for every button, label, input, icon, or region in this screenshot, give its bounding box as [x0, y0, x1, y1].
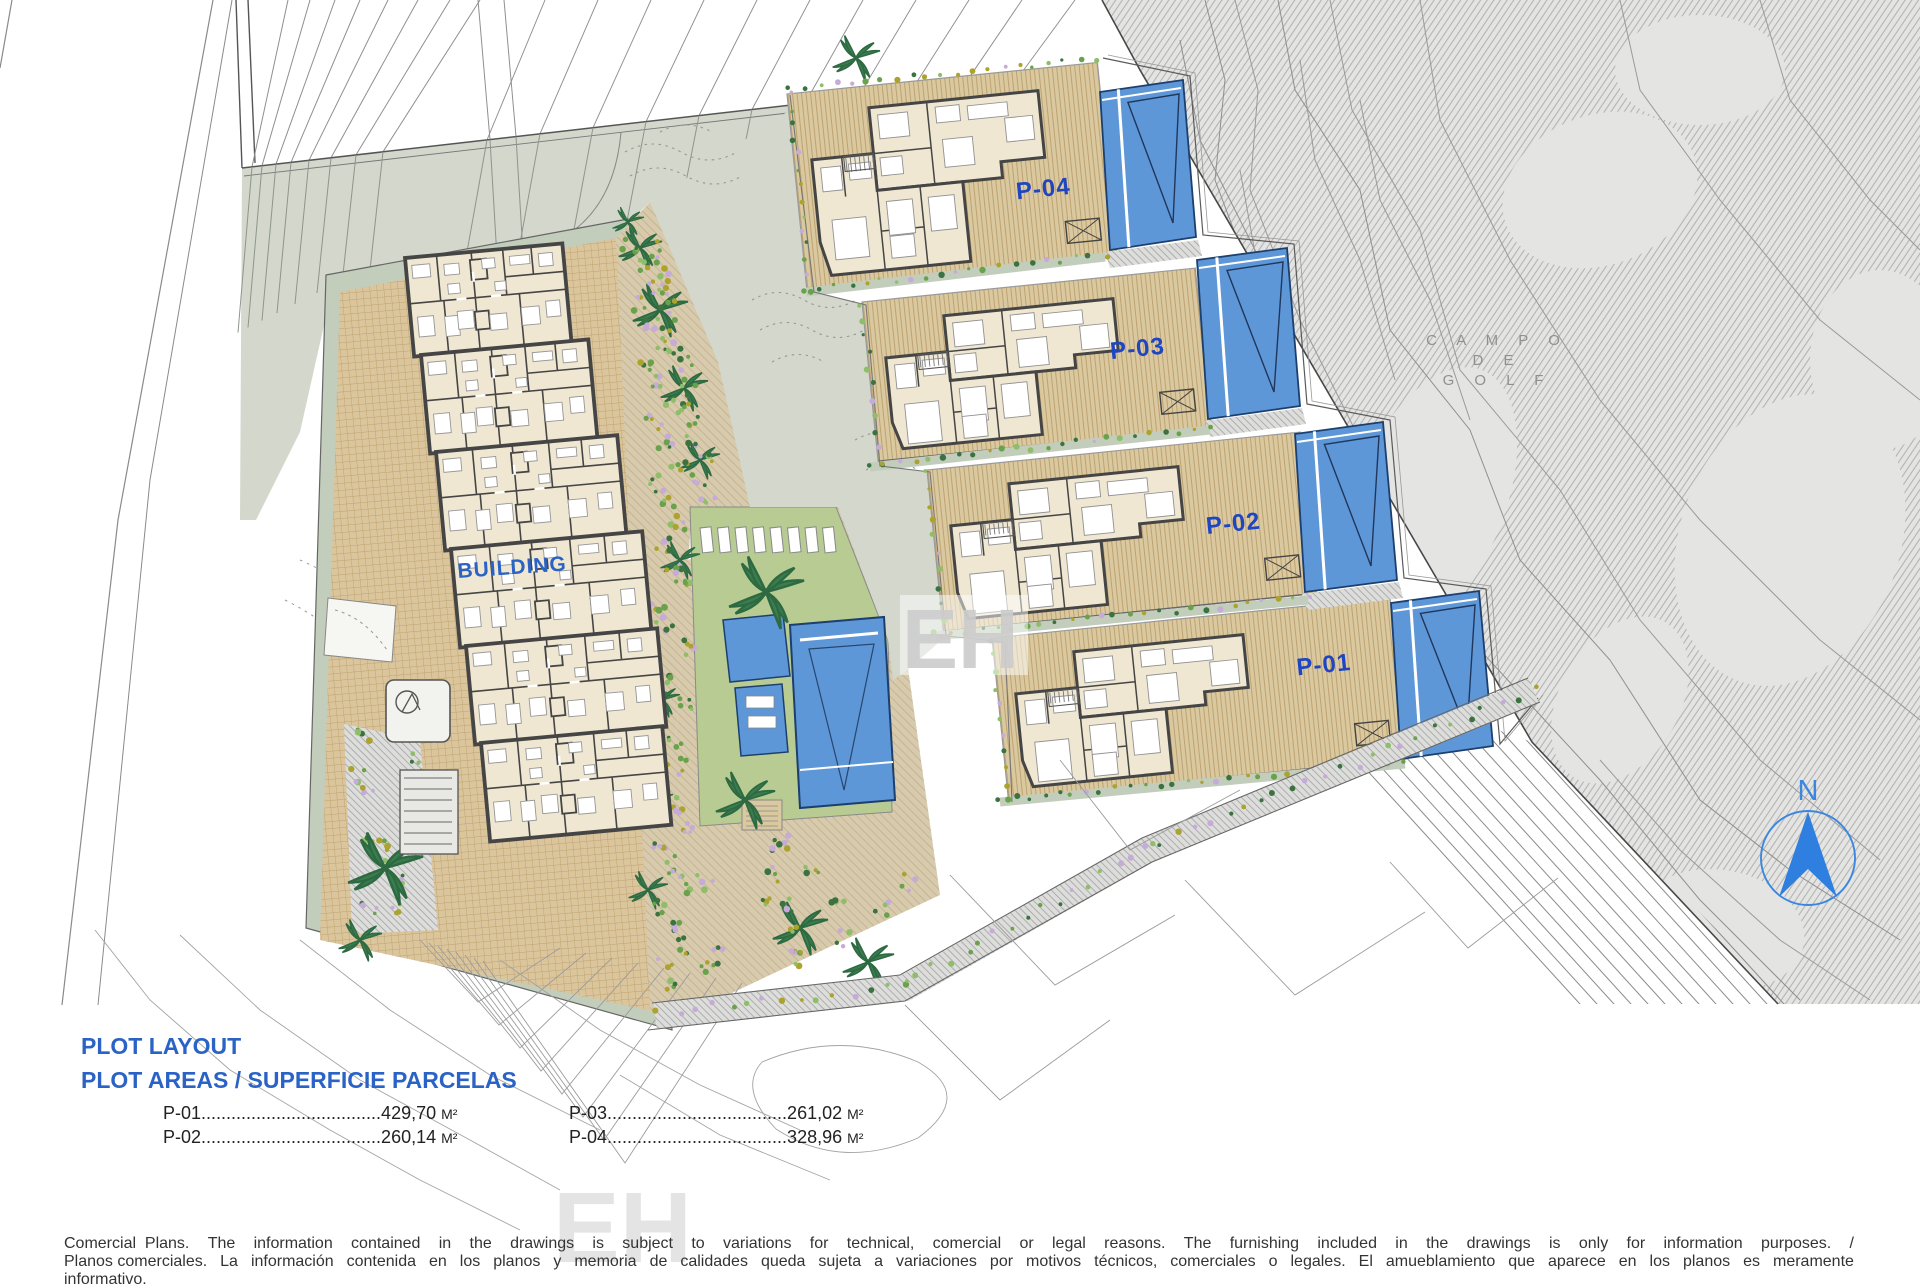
svg-text:P-04: P-04 — [1015, 173, 1072, 205]
svg-text:C A M P O: C A M P O — [1426, 332, 1568, 349]
svg-text:P-03: P-03 — [1109, 333, 1166, 365]
svg-text:EH: EH — [902, 592, 1019, 686]
svg-text:G O L F: G O L F — [1443, 372, 1552, 389]
svg-text:D E: D E — [1472, 352, 1521, 369]
svg-text:N: N — [1798, 775, 1819, 807]
svg-text:P-02: P-02 — [1205, 508, 1262, 540]
svg-text:P-01: P-01 — [1295, 649, 1352, 681]
